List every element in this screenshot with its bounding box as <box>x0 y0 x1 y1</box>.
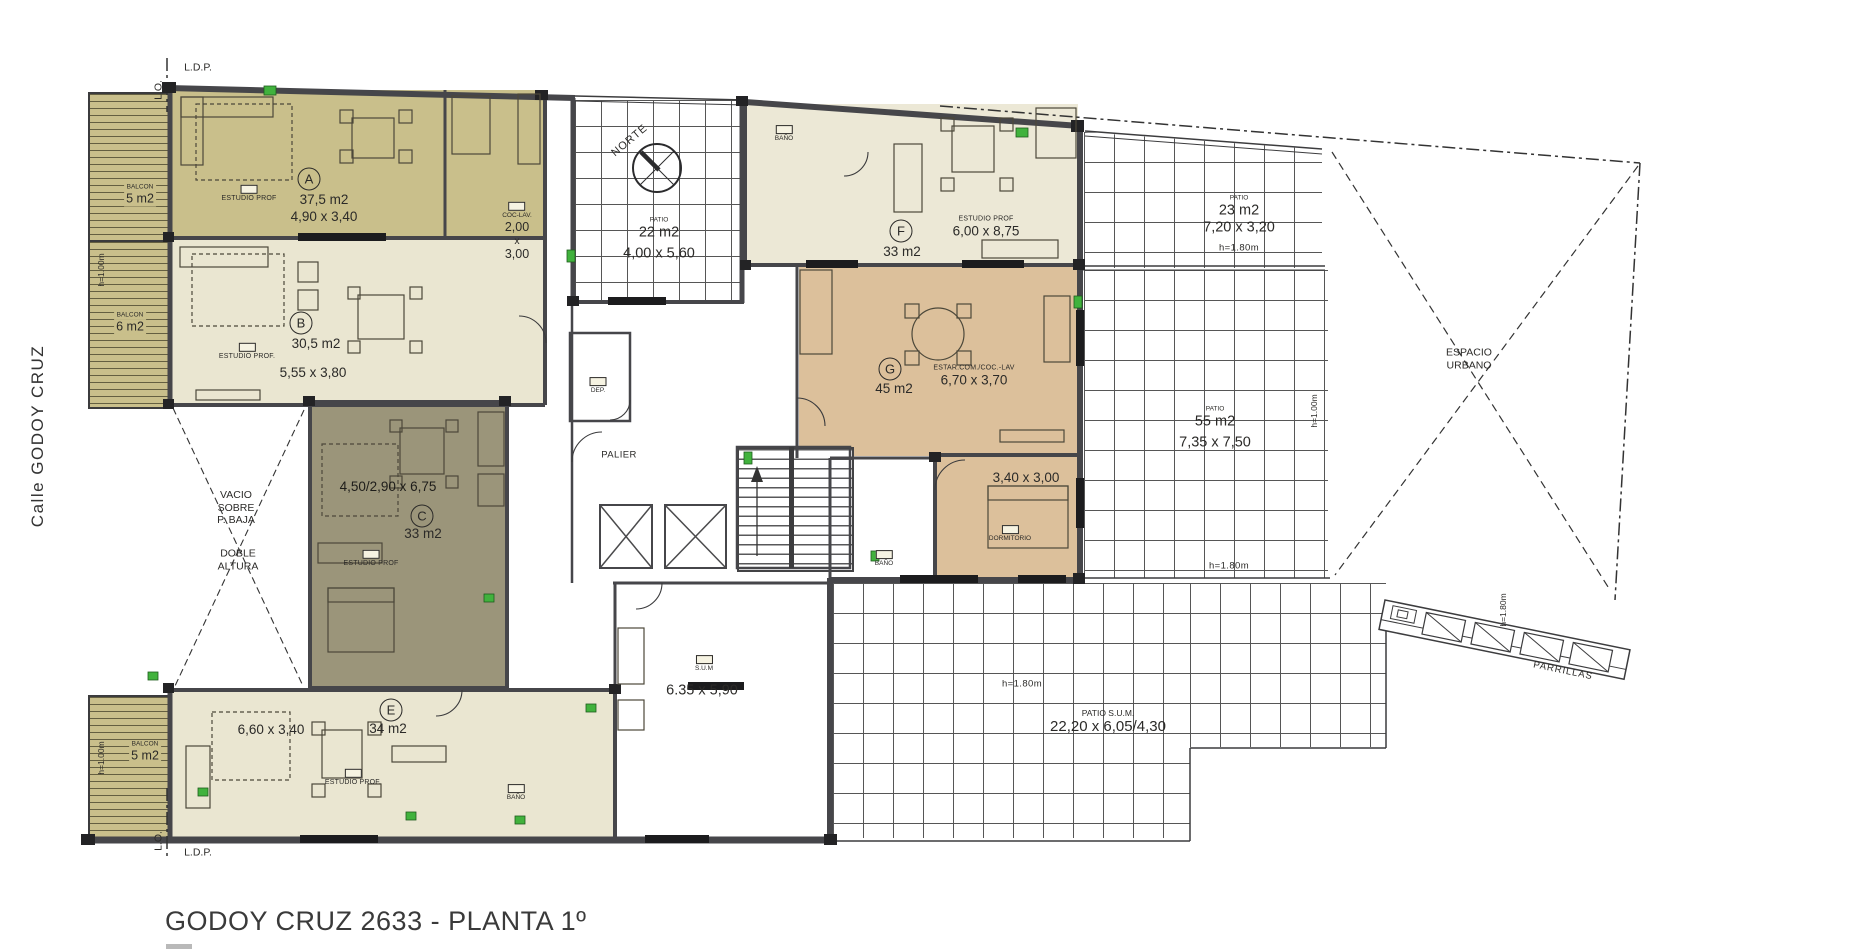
balcony-bottom-height: h=1.00m <box>96 741 106 774</box>
room-tag-icon <box>241 185 258 194</box>
patio-22-label: PATIO 22 m2 4,00 x 5,60 <box>623 217 695 264</box>
unit-e-dims: 6,60 x 3,40 <box>238 722 305 738</box>
balcony-middle-area: 6 m2 <box>114 319 146 334</box>
ldp-bottom-label: L.D.P. <box>184 847 212 860</box>
patio-22-area: 22 m2 <box>623 225 695 242</box>
unit-b-room-name: ESTUDIO PROF. <box>219 353 275 361</box>
unit-c-circle: C <box>411 505 434 528</box>
patio-55-dims: 7,35 x 7,50 <box>1179 435 1251 452</box>
unit-b-circle: B <box>290 312 313 335</box>
title-subtext-smudge <box>166 944 192 949</box>
room-tag-icon <box>875 550 892 559</box>
unit-a-room-label: ESTUDIO PROF <box>222 185 277 203</box>
patio-22-name: PATIO <box>623 217 695 225</box>
dep-name: DEP. <box>590 387 607 395</box>
unit-a-room-name: ESTUDIO PROF <box>222 195 277 203</box>
room-tag-icon <box>696 655 713 664</box>
room-tag-icon <box>509 202 526 211</box>
plan-linework <box>0 0 1873 950</box>
vacio-line1: VACIO <box>217 489 255 502</box>
unit-g-circle: G <box>879 358 902 381</box>
doble-altura-label: DOBLE ALTURA <box>218 547 259 572</box>
patio-23-dims: 7,20 x 3,20 <box>1203 220 1275 237</box>
coclav-label: COC-LAV. 2,00 x 3,00 <box>502 202 532 262</box>
patio-sum-height: h=1.80m <box>1002 678 1042 689</box>
unit-a-dims: 4,90 x 3,40 <box>291 209 358 225</box>
patio-23-height: h=1.80m <box>1203 242 1275 253</box>
banio-f-label: BAÑO <box>775 125 793 143</box>
coclav-width: 2,00 <box>502 220 532 235</box>
ldp-top-label: L.D.P. <box>184 62 212 75</box>
room-tag-icon <box>345 769 362 778</box>
floor-plan: L.D.P. L.O. L.O. L.D.P. Calle GODOY CRUZ… <box>0 0 1873 950</box>
espacio-urbano-label: ESPACIO URBANO <box>1446 346 1492 371</box>
unit-b-area: 30,5 m2 <box>292 336 341 352</box>
unit-c-room-name: ESTUDIO PROF <box>344 560 399 568</box>
altura-text: ALTURA <box>218 560 259 573</box>
lo-bottom-label: L.O. <box>153 831 166 851</box>
stair-rail <box>789 447 794 568</box>
patio-55-name: PATIO <box>1179 406 1251 414</box>
coclav-height: 3,00 <box>502 247 532 262</box>
room-tag-icon <box>590 377 607 386</box>
vacio-line2: SOBRE <box>217 502 255 515</box>
vacio-label: VACIO SOBRE P. BAJA <box>217 489 255 527</box>
patio-23-name: PATIO <box>1203 195 1275 203</box>
stair-arrow <box>751 466 763 556</box>
room-tag-icon <box>239 343 256 352</box>
vacio-line3: P. BAJA <box>217 514 255 527</box>
unit-a-area: 37,5 m2 <box>300 192 349 208</box>
patio-23-label: PATIO 23 m2 7,20 x 3,20 h=1.80m <box>1203 195 1275 254</box>
dormitorio-name: DORMITORIO <box>989 535 1031 543</box>
unit-e-area: 34 m2 <box>369 721 407 737</box>
patio-55-label: PATIO 55 m2 7,35 x 7,50 <box>1179 406 1251 453</box>
room-tag-icon <box>775 125 792 134</box>
unit-g-room-name: ESTAR.COM./COC.-LAV <box>933 365 1014 373</box>
patio-sum-dims: 22,20 x 6,05/4,30 <box>1050 718 1166 736</box>
banio-g-label: BAÑO <box>875 550 893 568</box>
doble-text: DOBLE <box>218 547 259 560</box>
balcony-top-area: 5 m2 <box>124 191 156 206</box>
unit-f-circle: F <box>890 220 913 243</box>
height-right-mid: h=1.00m <box>1309 394 1319 427</box>
banio-e-label: BAÑO <box>507 784 525 802</box>
patio-sum-label: PATIO S.U.M. 22,20 x 6,05/4,30 <box>1050 708 1166 736</box>
page-title: GODOY CRUZ 2633 - PLANTA 1º <box>165 906 587 937</box>
sum-dims: 6.35 x 5,90 <box>666 682 738 699</box>
unit-b-room-label: ESTUDIO PROF. <box>219 343 275 361</box>
unit-f-room-name: ESTUDIO PROF <box>953 216 1020 224</box>
balcony-top-name: BALCON <box>124 184 156 192</box>
elevator-x-marks <box>600 505 726 568</box>
balcony-bottom-area: 5 m2 <box>129 748 161 763</box>
patio-23-area: 23 m2 <box>1203 202 1275 219</box>
unit-c-area: 33 m2 <box>404 526 442 542</box>
unit-g-dims-label: ESTAR.COM./COC.-LAV 6,70 x 3,70 <box>933 365 1014 390</box>
unit-c-dims: 4,50/2,90 x 6,75 <box>340 479 437 495</box>
dormitorio-dims: 3,40 x 3,00 <box>993 470 1060 486</box>
room-tag-icon <box>1001 525 1018 534</box>
balcony-middle-label: BALCON 6 m2 <box>114 312 146 335</box>
unit-e-room-name: ESTUDIO PROF. <box>325 779 381 787</box>
unit-e-room-label: ESTUDIO PROF. <box>325 769 381 787</box>
height-far-right: h=1.80m <box>1498 593 1508 626</box>
unit-e-circle: E <box>380 699 403 722</box>
patio-55-area: 55 m2 <box>1179 414 1251 431</box>
palier-label: PALIER <box>601 449 637 460</box>
espacio-text: ESPACIO <box>1446 346 1492 359</box>
unit-b-dims: 5,55 x 3,80 <box>280 365 347 381</box>
sum-label: S.U.M <box>695 655 713 673</box>
banio-g-name: BAÑO <box>875 560 893 568</box>
unit-f-dims-label: ESTUDIO PROF 6,00 x 8,75 <box>953 216 1020 241</box>
balcony-bottom-label: BALCON 5 m2 <box>129 741 161 764</box>
room-tag-icon <box>363 550 380 559</box>
dep-label: DEP. <box>590 377 607 395</box>
patio-55-height: h=1.80m <box>1209 560 1249 571</box>
street-label: Calle GODOY CRUZ <box>28 345 48 527</box>
sum-name: S.U.M <box>695 665 713 673</box>
lo-top-label: L.O. <box>153 80 166 100</box>
patio-22-dims: 4,00 x 5,60 <box>623 246 695 263</box>
unit-c-room-label: ESTUDIO PROF <box>344 550 399 568</box>
dormitorio-label: DORMITORIO <box>989 525 1031 543</box>
north-compass <box>633 144 681 192</box>
coclav-x: x <box>502 235 532 248</box>
unit-g-dims: 6,70 x 3,70 <box>933 373 1014 389</box>
banio-e-name: BAÑO <box>507 794 525 802</box>
unit-f-dims: 6,00 x 8,75 <box>953 224 1020 240</box>
patio-sum-name: PATIO S.U.M. <box>1050 708 1166 718</box>
unit-f-area: 33 m2 <box>883 244 921 260</box>
balcony-top-label: BALCON 5 m2 <box>124 184 156 207</box>
coclav-name: COC-LAV. <box>502 212 532 220</box>
urbano-text: URBANO <box>1446 359 1492 372</box>
balcony-middle-name: BALCON <box>114 312 146 320</box>
balcony-bottom-name: BALCON <box>129 741 161 749</box>
unit-a-circle: A <box>298 168 321 191</box>
banio-f-name: BAÑO <box>775 135 793 143</box>
unit-g-area: 45 m2 <box>875 381 913 397</box>
balcony-top-height: h=1.00m <box>96 253 106 286</box>
room-tag-icon <box>507 784 524 793</box>
